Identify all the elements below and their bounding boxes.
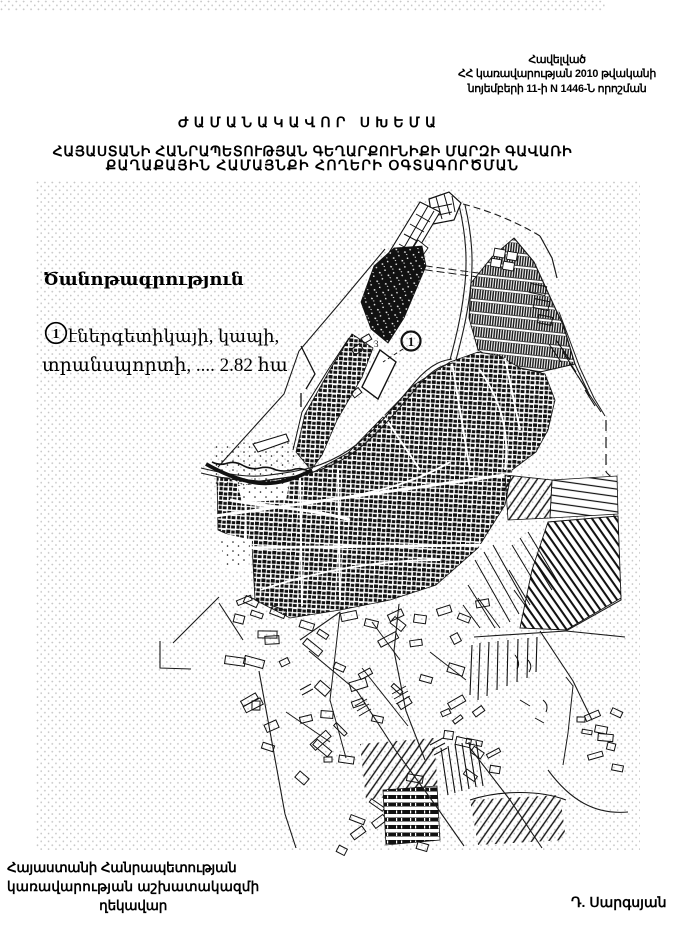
svg-text:1: 1 <box>53 327 60 342</box>
svg-text:Ծանոթագրություն: Ծանոթագրություն <box>43 269 244 289</box>
svg-text:էներգետիկայի, կապի,: էներգետիկայի, կապի, <box>68 326 279 346</box>
svg-text:տրանսպորտի, .... 2.82 հա: տրանսպորտի, .... 2.82 հա <box>42 355 288 376</box>
svg-text:1: 1 <box>408 334 415 349</box>
svg-text:3: 3 <box>374 339 379 349</box>
